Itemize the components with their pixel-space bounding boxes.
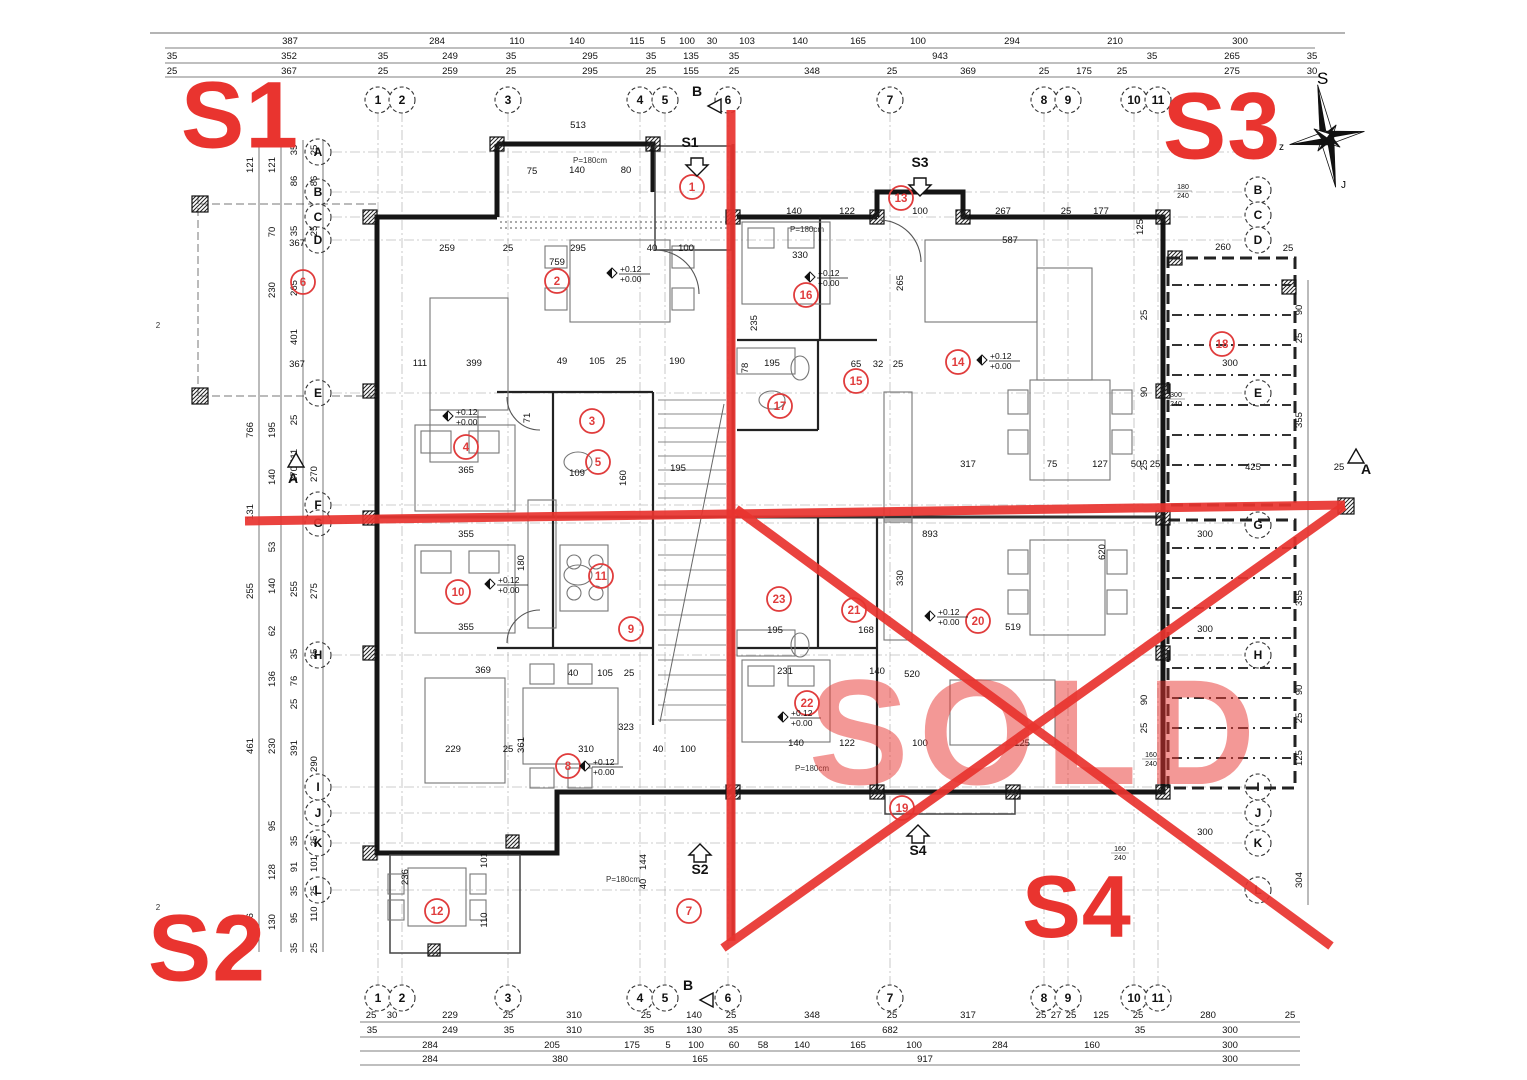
grid-bubble-label: 4 (637, 991, 644, 1005)
dimension-label: 70 (267, 227, 278, 238)
grid-bubble-label: 5 (662, 991, 669, 1005)
grid-bubble-label: 5 (662, 93, 669, 107)
dimension-label: 310 (566, 1010, 582, 1021)
dimension-label: 90 (1139, 387, 1150, 398)
room-number-label: 7 (686, 906, 692, 918)
section-arrow-icon (689, 844, 711, 862)
dimension-label: 300 (1232, 36, 1248, 47)
dimension-label: 35 (646, 51, 657, 62)
elevation-diamond-icon (778, 712, 783, 722)
dimension-label: 355 (1294, 590, 1305, 606)
dimension-label: 425 (1245, 462, 1261, 473)
section-marker-label: A (288, 470, 298, 486)
dimension-label: 35 (728, 1025, 739, 1036)
grid-bubble-label: 10 (1127, 93, 1141, 107)
dimension-label: 130 (686, 1025, 702, 1036)
elevation-diamond-icon (485, 579, 490, 589)
dimension-label: 25 (1139, 310, 1150, 321)
elevation-diamond-icon (443, 411, 448, 421)
grid-bubble-label: I (316, 780, 319, 794)
grid-bubble-label: B (1254, 183, 1263, 197)
dimension-label: 380 (552, 1054, 568, 1065)
dimension-label: 35 (504, 1025, 515, 1036)
dimension-label: 35 (289, 943, 300, 954)
dimension-label: 25 (887, 1010, 898, 1021)
dimension-label: 240 (1170, 401, 1182, 408)
dimension-label: 35 (644, 1025, 655, 1036)
dimension-label: 140 (794, 1040, 810, 1051)
dimension-label: 300 (1197, 827, 1213, 838)
dimension-label: 30 (707, 36, 718, 47)
room-number-label: 13 (895, 193, 908, 205)
elevation-upper-label: +0.12 (593, 757, 615, 767)
dimension-label: 943 (932, 51, 948, 62)
elevation-lower-label: +0.00 (593, 767, 615, 777)
dimension-label: 109 (569, 468, 585, 479)
dimension-label: 30 (1307, 66, 1318, 77)
dimension-label: 177 (1093, 206, 1109, 217)
dimension-label: 917 (917, 1054, 933, 1065)
dimension-label: 25 (366, 1010, 377, 1021)
dimension-label: 25 (289, 415, 300, 426)
dimension-label: 75 (527, 166, 538, 177)
dimension-label: 100 (679, 36, 695, 47)
dimension-label: 210 (1107, 36, 1123, 47)
dimension-label: 25 (309, 886, 320, 897)
unit-label-s4: S4 (1022, 863, 1132, 951)
unit-label-s3: S3 (1163, 80, 1281, 175)
dimension-label: 25 (309, 836, 320, 847)
section-marker-label: B (683, 977, 693, 993)
dimension-label: 355 (458, 622, 474, 633)
dimension-label: 348 (804, 66, 820, 77)
dimension-label: 110 (479, 912, 490, 927)
elevation-upper-label: +0.12 (620, 264, 642, 274)
dimension-label: 519 (1005, 622, 1021, 633)
dimension-label: 25 (1150, 459, 1161, 470)
dimension-label: 53 (267, 542, 278, 553)
dimension-label: 25 (167, 66, 178, 77)
dimension-label: 25 (624, 668, 635, 679)
dimension-label: 100 (912, 206, 928, 217)
grid-bubble-label: 3 (505, 93, 512, 107)
dimension-label: 76 (289, 676, 300, 687)
dimension-label: 165 (850, 36, 866, 47)
dimension-label: 140 (569, 165, 585, 176)
grid-bubble-label: 2 (399, 991, 406, 1005)
dimension-label: 105 (597, 668, 613, 679)
dimension-label: 35 (1135, 1025, 1146, 1036)
dimension-label: 367 (289, 238, 305, 249)
grid-bubble-label: C (314, 210, 323, 224)
dimension-label: 49 (557, 356, 568, 367)
dimension-label: 259 (439, 243, 455, 254)
dimension-label: 25 (1066, 1010, 1077, 1021)
dimension-label: 25 (309, 145, 320, 156)
dimension-label: 155 (683, 66, 699, 77)
dimension-label: 175 (1076, 66, 1092, 77)
room-number-label: 15 (850, 376, 863, 388)
dimension-label: 160 (618, 470, 629, 486)
grid-bubble-label: 9 (1065, 991, 1072, 1005)
dimension-label: 300 (1222, 1054, 1238, 1065)
room-number-label: 18 (1216, 339, 1229, 351)
elevation-diamond-icon (607, 268, 612, 278)
dimension-label: 317 (960, 1010, 976, 1021)
dimension-label: 111 (413, 358, 427, 369)
staircase (658, 400, 726, 722)
dimension-label: 195 (764, 358, 780, 369)
dimension-label: 365 (458, 465, 474, 476)
elevation-lower-label: +0.00 (938, 617, 960, 627)
dimension-label: 130 (267, 914, 278, 930)
dimension-label: 759 (549, 257, 565, 268)
dimension-label: 125 (1093, 1010, 1109, 1021)
dimension-label: 249 (442, 1025, 458, 1036)
section-marker-label: S4 (909, 842, 926, 858)
room-number-label: 23 (773, 594, 786, 606)
dimension-label: 25 (503, 744, 514, 755)
dimension-label: 35 (378, 51, 389, 62)
elevation-lower-label: +0.00 (456, 417, 478, 427)
dimension-label: 100 (678, 243, 694, 254)
dimension-label: 275 (309, 583, 320, 599)
elevation-diamond-icon (805, 272, 810, 282)
dimension-label: 136 (267, 671, 278, 687)
dimension-label: 35 (506, 51, 517, 62)
dimension-label: 125 (1294, 750, 1305, 766)
grid-bubble-label: E (1254, 386, 1262, 400)
elevation-upper-label: +0.12 (938, 607, 960, 617)
room-number-label: 2 (554, 276, 560, 288)
room-number-label: 6 (300, 277, 306, 289)
room-number-label: 12 (431, 906, 444, 918)
dimension-label: 27 (1051, 1010, 1062, 1021)
dimension-label: 25 (1061, 206, 1072, 217)
sold-stamp: SOLD (809, 657, 1266, 807)
dimension-label: 35 (367, 1025, 378, 1036)
dimension-label: 25 (378, 66, 389, 77)
dimension-label: 25 (503, 1010, 514, 1021)
section-arrow-icon (907, 825, 929, 843)
dimension-label: 25 (893, 359, 904, 370)
dimension-label: 295 (570, 243, 586, 254)
dimension-label: 35 (289, 649, 300, 660)
dimension-label: 230 (267, 282, 278, 298)
grid-bubble-label: 10 (1127, 991, 1141, 1005)
dimension-label: 620 (1097, 544, 1108, 560)
grid-bubble-label: 7 (887, 93, 894, 107)
dimension-label: 513 (570, 120, 586, 131)
dimension-label: 40 (568, 668, 579, 679)
elevation-lower-label: +0.00 (620, 274, 642, 284)
dimension-label: 175 (624, 1040, 640, 1051)
dimension-label: 300 (1197, 529, 1213, 540)
dimension-label: 317 (960, 459, 976, 470)
dimension-label: 255 (245, 583, 256, 599)
dimension-label: 25 (1283, 243, 1294, 254)
dimension-label: 348 (804, 1010, 820, 1021)
grid-bubble-label: 8 (1041, 93, 1048, 107)
dimension-label: 32 (873, 359, 884, 370)
dimension-label: 25 (1039, 66, 1050, 77)
dimension-label: 300 (1222, 1040, 1238, 1051)
dimension-label: 267 (995, 206, 1011, 217)
dimension-label: 165 (850, 1040, 866, 1051)
dimension-label: 35 (729, 51, 740, 62)
dimension-label: 25 (289, 699, 300, 710)
dimension-label: 401 (289, 329, 300, 345)
dimension-label: 25 (1133, 1010, 1144, 1021)
elevation-lower-label: +0.00 (818, 278, 840, 288)
dimension-label: 35 (1147, 51, 1158, 62)
dimension-label: 387 (282, 36, 298, 47)
dimension-label: 323 (618, 722, 634, 733)
room-number-label: 17 (774, 401, 787, 413)
dimension-label: 25 (1294, 333, 1305, 344)
dimension-label: 60 (729, 1040, 740, 1051)
grid-bubble-label: E (314, 386, 322, 400)
dimension-label: 270 (309, 466, 320, 482)
dimension-label: 180 (516, 555, 527, 571)
dimension-label: 101 (479, 852, 490, 868)
unit-label-s1: S1 (181, 69, 299, 164)
dimension-label: 127 (1092, 459, 1108, 470)
dimension-label: 86 (289, 176, 300, 187)
elevation-upper-label: +0.12 (498, 575, 520, 585)
dimension-label: 103 (739, 36, 755, 47)
dimension-label: 399 (466, 358, 482, 369)
dimension-label: 140 (786, 206, 802, 217)
elevation-upper-label: +0.12 (990, 351, 1012, 361)
room-number-label: 10 (452, 587, 465, 599)
dimension-label: 100 (688, 1040, 704, 1051)
room-number-label: 20 (972, 616, 985, 628)
grid-bubble-label: J (315, 806, 322, 820)
dimension-label: 259 (442, 66, 458, 77)
dimension-label: 300 (1222, 1025, 1238, 1036)
dimension-label: 140 (267, 469, 278, 485)
dimension-label: 160 (1114, 846, 1126, 853)
room-number-label: 21 (848, 605, 861, 617)
dimension-label: 229 (445, 744, 461, 755)
room-number-label: 5 (595, 457, 602, 469)
dimension-label: 105 (589, 356, 605, 367)
section-arrow-icon (700, 993, 713, 1007)
grid-bubble-label: 2 (399, 93, 406, 107)
dimension-label: 260 (1215, 242, 1231, 253)
dimension-label: 310 (566, 1025, 582, 1036)
misc-label: P=180cm (606, 875, 640, 884)
dimension-label: 25 (1334, 462, 1345, 473)
dimension-label: 35 (289, 226, 300, 237)
grid-bubble-label: 1 (375, 93, 382, 107)
compass-letter: S (1317, 69, 1328, 88)
dimension-label: 110 (309, 906, 320, 921)
dimension-label: 330 (895, 570, 906, 586)
dimension-label: 90 (1294, 685, 1305, 696)
dimension-label: 284 (429, 36, 445, 47)
furniture (388, 220, 1132, 926)
dimension-label: 330 (792, 250, 808, 261)
dimension-label: 25 (1117, 66, 1128, 77)
dimension-label: 290 (309, 756, 320, 772)
elevation-lower-label: +0.00 (990, 361, 1012, 371)
dimension-label: 125 (1135, 219, 1146, 235)
dimension-label: 160 (1084, 1040, 1100, 1051)
room-number-label: 1 (689, 182, 696, 194)
dimension-label: 461 (245, 738, 256, 754)
misc-label: P=180cm (573, 156, 607, 165)
dimension-label: 165 (692, 1054, 708, 1065)
dimension-label: 265 (895, 275, 906, 291)
elevation-upper-label: +0.12 (456, 407, 478, 417)
elevation-diamond-icon (977, 355, 982, 365)
dimension-label: 25 (1294, 713, 1305, 724)
dimension-label: 35 (289, 836, 300, 847)
dimension-label: 35 (1307, 51, 1318, 62)
misc-label: P=180cm (790, 225, 824, 234)
dimension-label: 355 (1294, 412, 1305, 428)
dimension-label: 235 (749, 315, 760, 331)
room-number-label: 16 (800, 290, 813, 302)
grid-bubble-label: C (1254, 208, 1263, 222)
dimension-label: 78 (740, 363, 751, 374)
terrace-s3 (1168, 258, 1295, 505)
dimension-label: 236 (400, 869, 411, 885)
grid-bubble-label: D (1254, 233, 1263, 247)
dimension-label: 95 (267, 821, 278, 832)
unit-label-s2: S2 (148, 902, 266, 997)
dimension-label: 58 (758, 1040, 769, 1051)
grid-bubble-label: 7 (887, 991, 894, 1005)
dimension-label: 25 (309, 649, 320, 660)
section-arrow-icon (686, 158, 708, 176)
floor-plan-page: 11223344556677889910101111ABCDEFGHIJKLBC… (0, 0, 1527, 1080)
grid-bubble-label: 6 (725, 991, 732, 1005)
dimension-label: 766 (245, 422, 256, 438)
dimension-label: 195 (670, 463, 686, 474)
dimension-label: 140 (267, 578, 278, 594)
dimension-label: 195 (267, 422, 278, 438)
dimension-label: 893 (922, 529, 938, 540)
dimension-label: 284 (422, 1054, 438, 1065)
dimension-label: 25 (646, 66, 657, 77)
elevation-diamond-icon (580, 761, 585, 771)
section-marker-label: S3 (911, 154, 928, 170)
dimension-label: 140 (569, 36, 585, 47)
grid-bubble-label: 9 (1065, 93, 1072, 107)
dimension-label: 304 (1294, 872, 1305, 888)
dimension-label: 91 (289, 862, 300, 873)
misc-label: 2 (156, 321, 161, 330)
dimension-label: 50 (1131, 459, 1142, 470)
dimension-label: 25 (1036, 1010, 1047, 1021)
dimension-label: 140 (788, 738, 804, 749)
dimension-label: 231 (777, 666, 793, 677)
dimension-label: 391 (289, 740, 300, 756)
dimension-label: 240 (1177, 193, 1189, 200)
room-number-label: 8 (565, 761, 572, 773)
dimension-label: 140 (792, 36, 808, 47)
dimension-label: 80 (621, 165, 632, 176)
room-number-label: 14 (952, 357, 965, 369)
dimension-label: 128 (267, 864, 278, 880)
dimension-label: 100 (680, 744, 696, 755)
dimension-label: 265 (1224, 51, 1240, 62)
dimension-label: 5 (665, 1040, 670, 1051)
dimension-label: 295 (582, 66, 598, 77)
dimension-label: 144 (638, 854, 649, 870)
dimension-label: 249 (442, 51, 458, 62)
dimension-label: 195 (767, 625, 783, 636)
elevation-lower-label: +0.00 (498, 585, 520, 595)
grid-bubble-label: 3 (505, 991, 512, 1005)
dimension-label: 284 (992, 1040, 1008, 1051)
section-marker-label: A (1361, 461, 1371, 477)
dimension-label: 30 (387, 1010, 398, 1021)
dimension-label: 25 (729, 66, 740, 77)
dimension-label: 284 (422, 1040, 438, 1051)
dimension-label: 25 (309, 226, 320, 237)
dimension-label: 40 (647, 243, 658, 254)
dimension-label: 25 (309, 943, 320, 954)
dimension-label: 110 (509, 36, 524, 47)
dimension-label: 115 (629, 36, 644, 47)
room-number-label: 3 (589, 416, 595, 428)
grid-bubble-label: 8 (1041, 991, 1048, 1005)
dimension-label: 25 (726, 1010, 737, 1021)
dimension-label: 5 (660, 36, 665, 47)
dimension-label: 300 (1197, 624, 1213, 635)
dimension-label: 25 (641, 1010, 652, 1021)
dimension-label: 682 (882, 1025, 898, 1036)
section-marker-label: B (692, 83, 702, 99)
dimension-label: 280 (1200, 1010, 1216, 1021)
dimension-label: 352 (281, 51, 297, 62)
dimension-label: 229 (442, 1010, 458, 1021)
dimension-label: 168 (858, 625, 874, 636)
dimension-label: 295 (582, 51, 598, 62)
dimension-label: 101 (309, 856, 320, 872)
dimension-label: 140 (686, 1010, 702, 1021)
dimension-label: 294 (1004, 36, 1020, 47)
dimension-label: 310 (578, 744, 594, 755)
dimension-label: 25 (503, 243, 514, 254)
room-number-label: 9 (628, 624, 634, 636)
dimension-label: 35 (167, 51, 178, 62)
elevation-diamond-icon (925, 611, 930, 621)
walls (377, 144, 1163, 940)
dimension-label: 25 (506, 66, 517, 77)
room-number-label: 11 (595, 571, 608, 583)
dimension-label: 122 (839, 206, 855, 217)
dimension-label: 367 (289, 359, 305, 370)
dimension-label: 180 (1177, 184, 1189, 191)
dimension-label: 71 (522, 413, 533, 424)
dimension-label: 95 (289, 913, 300, 924)
dimension-label: 369 (475, 665, 491, 676)
dimension-label: 25 (1285, 1010, 1296, 1021)
dimension-label: 75 (1047, 459, 1058, 470)
dimension-label: 86 (309, 176, 320, 187)
red-overlay-lines (245, 110, 1345, 948)
grid-bubble-label: K (1254, 836, 1263, 850)
dimension-label: 190 (669, 356, 685, 367)
room-number-label: 4 (463, 442, 470, 454)
dimension-label: 355 (458, 529, 474, 540)
dimension-label: 25 (616, 356, 627, 367)
